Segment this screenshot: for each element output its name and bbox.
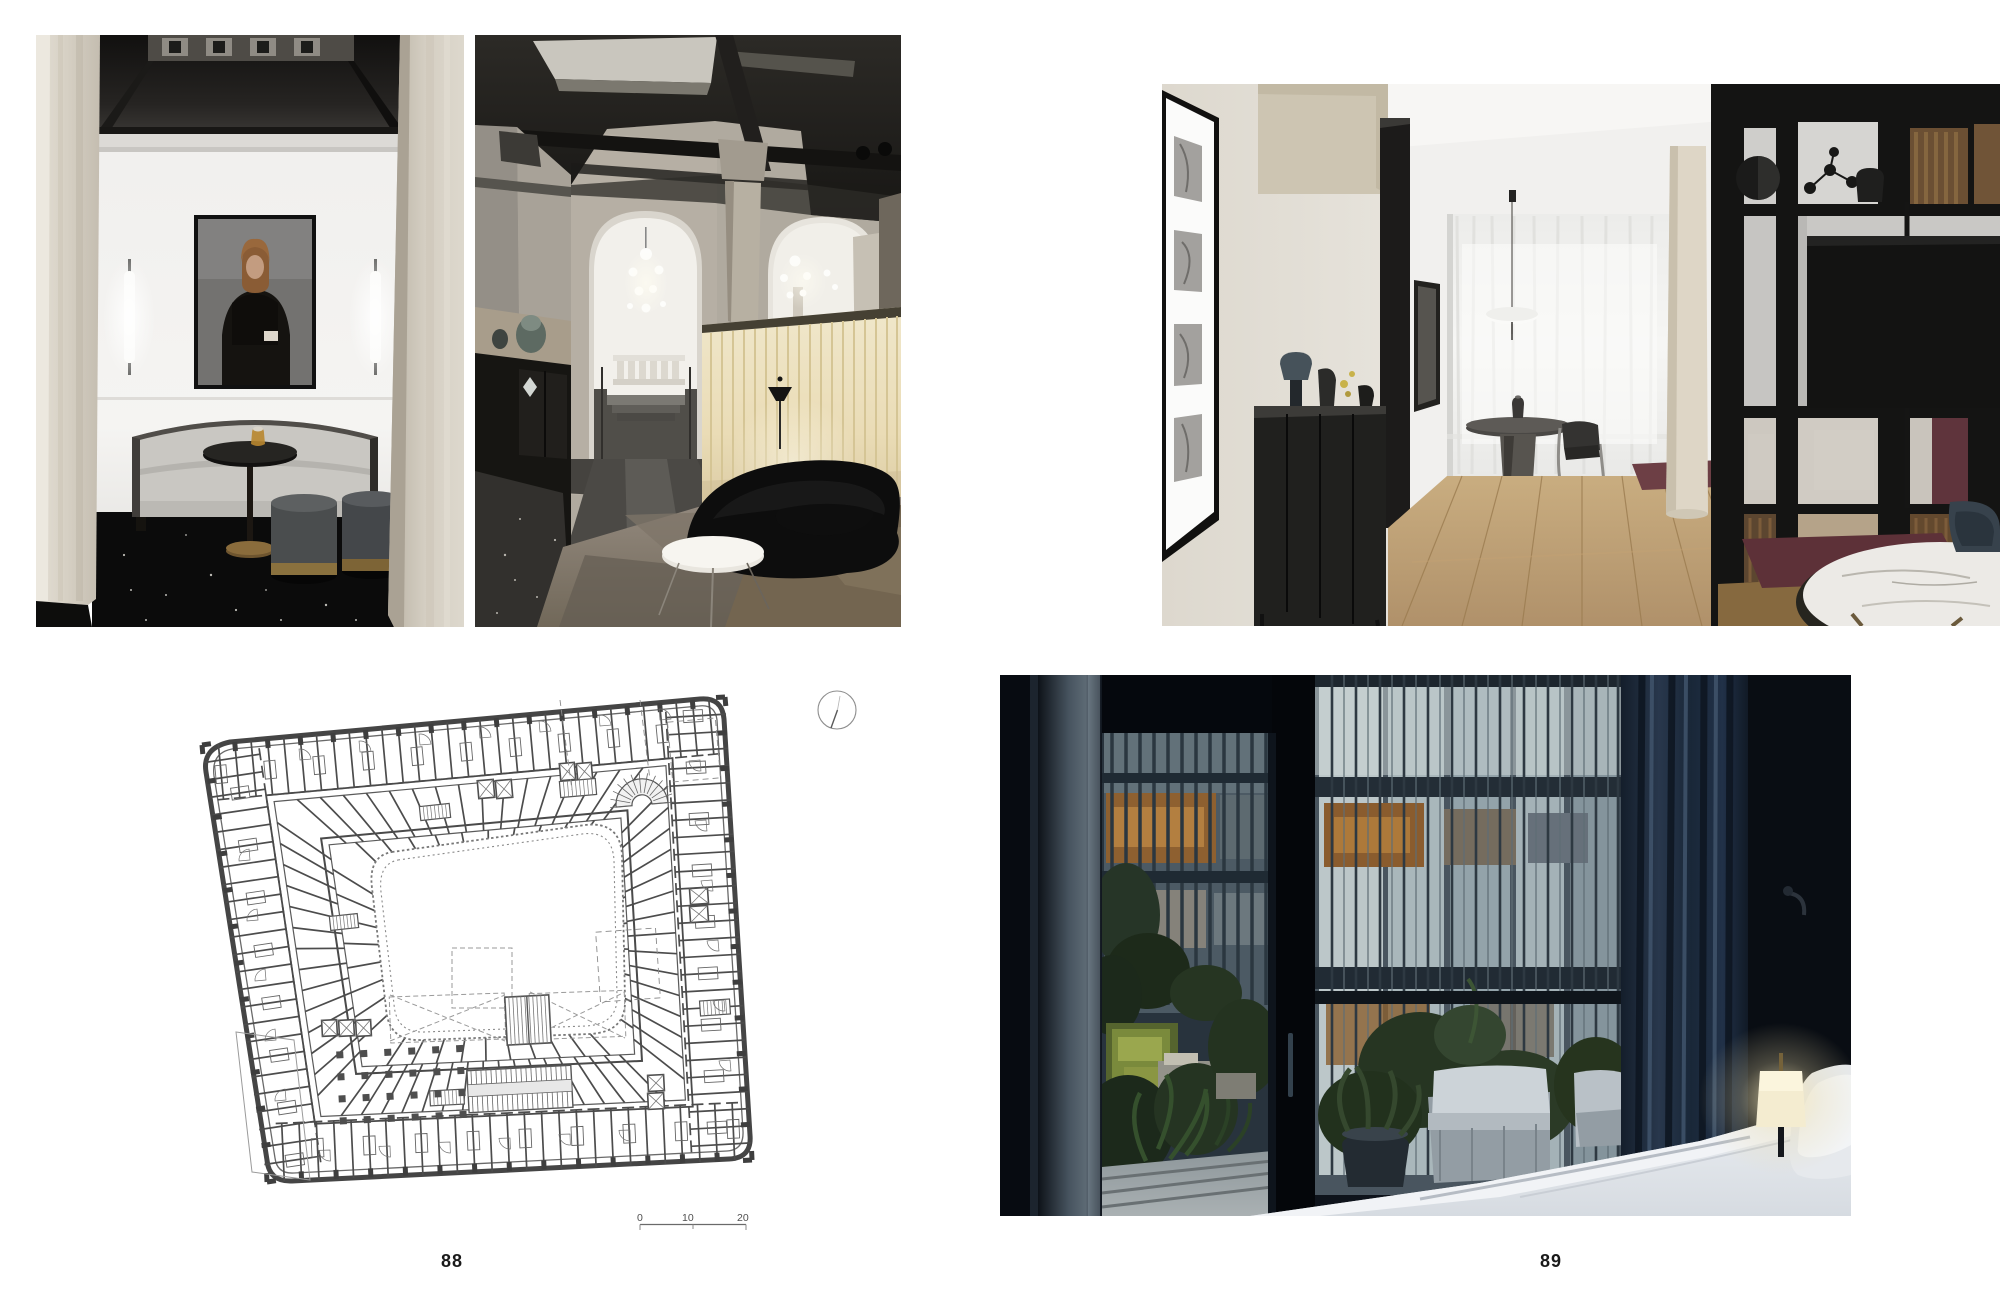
svg-text:20: 20 (737, 1212, 749, 1224)
svg-text:0: 0 (637, 1212, 643, 1224)
svg-text:10: 10 (682, 1212, 694, 1224)
